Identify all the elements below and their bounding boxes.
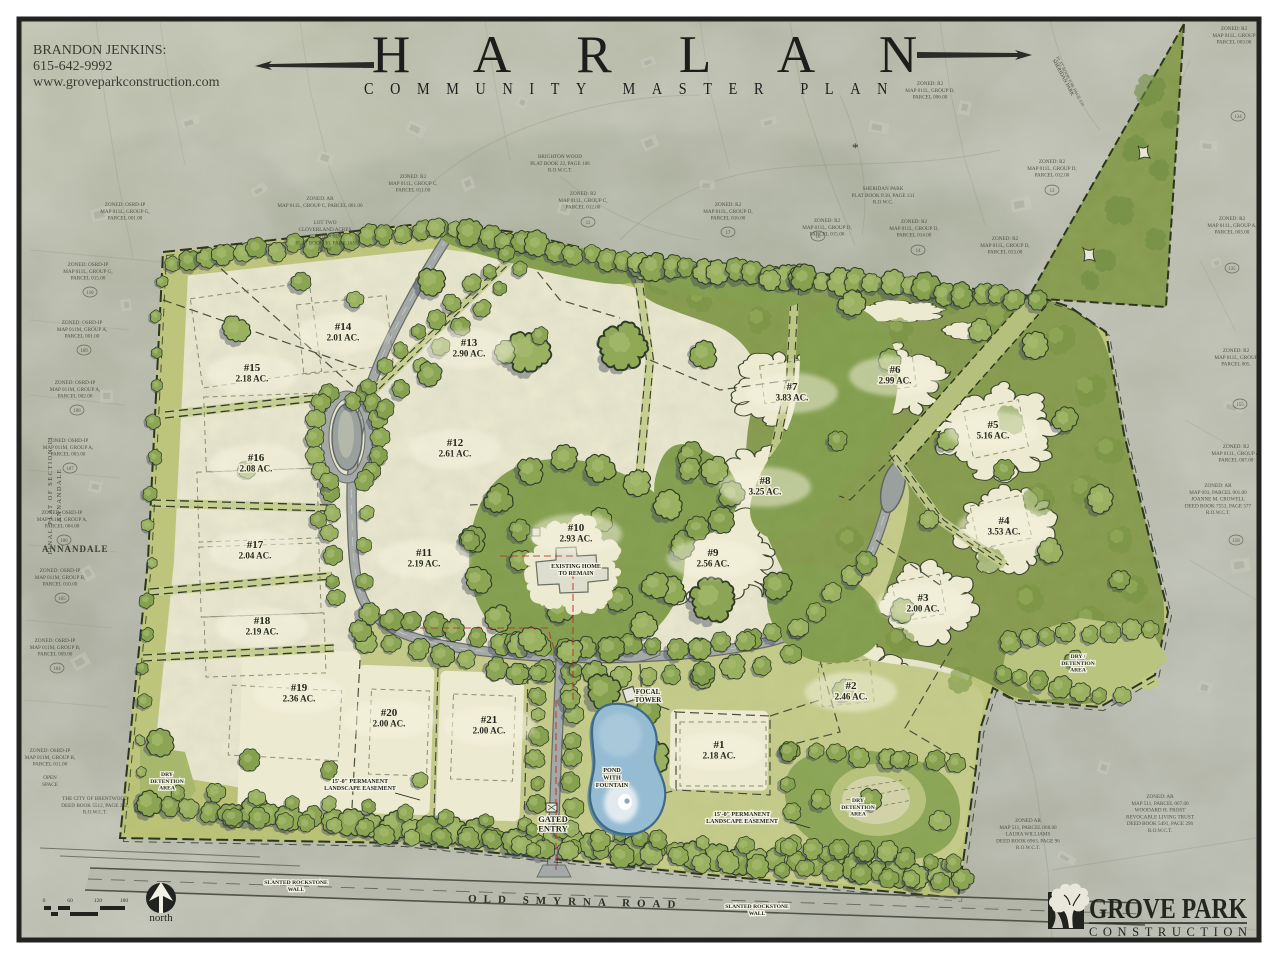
svg-text:DEED BOOK 7553, PAGE 577: DEED BOOK 7553, PAGE 577 [1185,503,1252,509]
svg-text:2.04 AC.: 2.04 AC. [239,550,272,560]
svg-text:108: 108 [73,409,81,414]
svg-text:#16: #16 [248,452,265,464]
svg-text:104: 104 [53,667,61,672]
svg-text:180: 180 [120,898,129,904]
svg-text:*: * [852,140,859,155]
svg-text:PARCEL 003.00: PARCEL 003.00 [1215,230,1250,236]
svg-text:THE CITY OF BRENTWOOD: THE CITY OF BRENTWOOD [62,796,128,802]
svg-text:PARCEL 016.00: PARCEL 016.00 [711,216,746,222]
svg-text:2.46 AC.: 2.46 AC. [835,691,868,701]
svg-text:MAP 011L, GROUP: MAP 011L, GROUP [1214,355,1257,361]
svg-text:L: L [679,26,711,84]
svg-text:AREA: AREA [1070,668,1086,674]
svg-text:MAP 011L, GROUP C, PARCEL 001.: MAP 011L, GROUP C, PARCEL 001.00 [277,203,363,209]
svg-text:#5: #5 [988,419,1000,431]
svg-text:2.19 AC.: 2.19 AC. [246,626,279,636]
svg-text:#19: #19 [291,682,308,694]
svg-text:#21: #21 [481,714,498,726]
svg-text:2.93 AC.: 2.93 AC. [560,533,593,543]
svg-text:DEED BOOK 6963, PAGE 96: DEED BOOK 6963, PAGE 96 [996,838,1060,844]
svg-text:134: 134 [1234,115,1242,120]
svg-text:R.O.W.C.T.: R.O.W.C.T. [1206,510,1230,516]
svg-text:#11: #11 [416,547,432,559]
svg-text:TO REMAIN: TO REMAIN [558,571,594,577]
svg-text:DRY: DRY [852,798,864,804]
svg-text:REVOCABLE LIVING TRUST: REVOCABLE LIVING TRUST [1126,814,1195,820]
svg-text:MAP 011M, GROUP A,: MAP 011M, GROUP A, [57,327,108,333]
svg-text:WALL: WALL [749,911,766,917]
svg-text:PARCEL 003.00: PARCEL 003.00 [51,452,86,458]
svg-text:MAP 011L, GROUP G,: MAP 011L, GROUP G, [100,209,149,215]
svg-text:ZONED: OSRD-IP: ZONED: OSRD-IP [62,320,103,326]
svg-text:MAP 011L, GROUP D,: MAP 011L, GROUP D, [703,209,752,215]
svg-text:MAP 511, PARCEL 067.00: MAP 511, PARCEL 067.00 [1131,801,1189,807]
svg-text:MAP 011L, GROUP D,: MAP 011L, GROUP D, [802,225,851,231]
svg-text:ZONED: R2: ZONED: R2 [1039,159,1066,165]
svg-text:WITH: WITH [603,774,621,781]
svg-text:11: 11 [586,221,591,226]
svg-text:PARCEL 011.00: PARCEL 011.00 [33,762,68,768]
svg-text:POND: POND [603,767,621,774]
svg-text:SECTION SIX: SECTION SIX [309,234,341,240]
svg-text:R.O.W.C.T.: R.O.W.C.T. [1016,845,1040,851]
svg-text:PARCEL 003.00: PARCEL 003.00 [1217,40,1252,46]
svg-text:2.90 AC.: 2.90 AC. [453,348,486,358]
svg-text:GROVE PARK: GROVE PARK [1089,894,1247,925]
svg-text:2.00 AC.: 2.00 AC. [907,603,940,613]
svg-text:DRY /: DRY / [1071,654,1086,660]
svg-text:A: A [777,26,815,84]
svg-text:#13: #13 [461,337,478,349]
svg-text:PARCEL 005.: PARCEL 005. [1221,362,1251,368]
svg-text:ZONED: R2: ZONED: R2 [400,174,427,180]
svg-text:R.O.W.C.T.: R.O.W.C.T. [83,810,107,816]
svg-text:MAP 011M, GROUP B,: MAP 011M, GROUP B, [30,645,81,651]
svg-text:PLAT BOOK P.38, PAGE 131: PLAT BOOK P.38, PAGE 131 [851,193,915,199]
svg-text:109: 109 [80,349,88,354]
svg-text:ZONED: R2: ZONED: R2 [814,218,841,224]
svg-text:BRIGHTON WOOD: BRIGHTON WOOD [538,154,582,160]
svg-text:DETENTION: DETENTION [1061,661,1095,667]
svg-text:PARCEL 006.00: PARCEL 006.00 [913,95,948,101]
svg-text:DRY: DRY [161,772,173,778]
svg-text:R.O.W.C.T.: R.O.W.C.T. [1148,828,1172,834]
svg-text:#15: #15 [244,362,261,374]
svg-text:15'-0" PERMANENT: 15'-0" PERMANENT [714,812,770,818]
svg-text:#4: #4 [999,515,1011,527]
svg-text:ZONED: AR: ZONED: AR [1204,483,1232,489]
svg-text:120: 120 [94,898,103,904]
svg-text:#6: #6 [890,364,902,376]
svg-text:ZONED: OSRD-IP: ZONED: OSRD-IP [35,638,76,644]
svg-text:SHERIDAN PARK: SHERIDAN PARK [863,186,904,192]
svg-text:135: 135 [1228,267,1236,272]
svg-text:PARCEL 013.00: PARCEL 013.00 [988,250,1023,256]
svg-text:AREA: AREA [159,786,175,792]
svg-text:WALL: WALL [288,887,305,893]
svg-text:ANNANDALE: ANNANDALE [42,544,109,554]
svg-text:COMMUNITY MASTER PLAN: COMMUNITY MASTER PLAN [364,79,904,98]
svg-text:MAP 011L, GROUP D,: MAP 011L, GROUP D, [980,243,1029,249]
svg-text:SLANTED ROCKSTONE: SLANTED ROCKSTONE [264,880,328,886]
svg-text:PARCEL 014.00: PARCEL 014.00 [897,233,932,239]
svg-text:MAP 011L, GROUP G,: MAP 011L, GROUP G, [63,269,112,275]
svg-text:PLAT BOOK 10, PAGE 163: PLAT BOOK 10, PAGE 163 [295,240,355,246]
svg-text:LANDSCAPE EASEMENT: LANDSCAPE EASEMENT [324,786,396,792]
svg-text:ZONED: R2: ZONED: R2 [1223,444,1250,450]
svg-text:17: 17 [726,231,731,236]
svg-text:#18: #18 [254,615,271,627]
svg-text:DEED BOOK 5491, PAGE 296: DEED BOOK 5491, PAGE 296 [1127,821,1194,827]
svg-text:DEED BOOK 5512, PAGE 302,: DEED BOOK 5512, PAGE 302, [61,803,129,809]
svg-text:2.08 AC.: 2.08 AC. [240,463,273,473]
svg-text:15'-0" PERMANENT: 15'-0" PERMANENT [332,779,388,785]
svg-text:5.16 AC.: 5.16 AC. [977,430,1010,440]
svg-text:ZONED: R2: ZONED: R2 [917,81,944,87]
svg-text:SLANTED ROCKSTONE: SLANTED ROCKSTONE [725,904,789,910]
svg-text:155: 155 [1236,403,1244,408]
svg-text:ANNANDALE: ANNANDALE [56,468,63,522]
svg-text:ZONED: OSRD-IP: ZONED: OSRD-IP [105,202,146,208]
svg-text:MAP 011M, GROUP B,: MAP 011M, GROUP B, [25,755,76,761]
svg-text:LOT TWO: LOT TWO [313,220,336,226]
svg-text:107: 107 [66,467,74,472]
svg-text:ZONED: OSRD-IP: ZONED: OSRD-IP [40,568,81,574]
svg-text:2.56 AC.: 2.56 AC. [697,558,730,568]
svg-text:PLAT BOOK 22, PAGE 108: PLAT BOOK 22, PAGE 108 [530,161,590,167]
svg-text:MAP 511, PARCEL 068.00: MAP 511, PARCEL 068.00 [999,825,1057,831]
svg-text:MAP 011M, GROUP B,: MAP 011M, GROUP B, [35,575,86,581]
svg-text:PARCEL 010.00: PARCEL 010.00 [43,582,78,588]
svg-text:#9: #9 [708,547,720,559]
svg-text:2.01 AC.: 2.01 AC. [327,332,360,342]
svg-text:ZONED: AR: ZONED: AR [306,196,334,202]
svg-text:13: 13 [1050,189,1055,194]
svg-text:CLOVERLAND ACRES: CLOVERLAND ACRES [299,227,352,233]
svg-text:FOCAL: FOCAL [636,688,661,696]
svg-text:ZONED: R2: ZONED: R2 [992,236,1019,242]
svg-text:A: A [473,26,511,84]
svg-text:DETENTION: DETENTION [841,805,875,811]
svg-text:ZONED: OSRD-IP: ZONED: OSRD-IP [55,380,96,386]
svg-text:2.18 AC.: 2.18 AC. [236,373,269,383]
svg-text:PARCEL 012.00: PARCEL 012.00 [1035,173,1070,179]
svg-text:MAP 093, PARCEL 001.00: MAP 093, PARCEL 001.00 [1189,490,1247,496]
svg-text:2.00 AC.: 2.00 AC. [373,718,406,728]
svg-text:FINAL PLAT OF SECTION 11: FINAL PLAT OF SECTION 11 [47,436,54,555]
svg-text:110: 110 [86,291,94,296]
svg-text:MAP 011L, GROUP A,: MAP 011L, GROUP A, [1207,223,1256,229]
svg-text:DETENTION: DETENTION [150,779,184,785]
svg-text:3.53 AC.: 3.53 AC. [988,526,1021,536]
svg-text:#3: #3 [918,592,930,604]
svg-text:BRANDON JENKINS:: BRANDON JENKINS: [33,43,166,58]
svg-text:2.18 AC.: 2.18 AC. [703,750,736,760]
svg-text:ZONED: R2: ZONED: R2 [1223,348,1250,354]
svg-text:JOANNE M. CROWELL: JOANNE M. CROWELL [1191,497,1245,503]
svg-text:OPEN: OPEN [43,775,57,781]
svg-text:www.groveparkconstruction.com: www.groveparkconstruction.com [33,75,220,90]
svg-text:FOUNTAIN: FOUNTAIN [596,782,629,789]
svg-text:MAP 011L, GROUP: MAP 011L, GROUP [1212,33,1255,39]
svg-text:#2: #2 [846,680,858,692]
svg-text:ZONED: AR: ZONED: AR [1146,794,1174,800]
svg-text:3.83 AC.: 3.83 AC. [776,392,809,402]
svg-text:N: N [879,26,917,84]
svg-text:R.O.W.C.T.: R.O.W.C.T. [548,168,572,174]
svg-text:#1: #1 [714,739,725,751]
svg-text:PARCEL 012.00: PARCEL 012.00 [566,205,601,211]
svg-text:PARCEL 009.00: PARCEL 009.00 [38,652,73,658]
svg-text:LAURA WILLIAMS: LAURA WILLIAMS [1006,832,1051,838]
svg-text:14: 14 [916,249,921,254]
svg-text:SPACE: SPACE [42,782,58,788]
svg-text:3.25 AC.: 3.25 AC. [749,486,782,496]
svg-text:#7: #7 [787,381,799,393]
svg-text:ZONED: R2: ZONED: R2 [901,219,928,225]
svg-text:2.36 AC.: 2.36 AC. [283,693,316,703]
svg-text:ZONED: OSRD-IP: ZONED: OSRD-IP [30,748,71,754]
svg-text:AREA: AREA [850,812,866,818]
svg-text:MAP 011L, GROUP D,: MAP 011L, GROUP D, [905,88,954,94]
svg-text:WOODARD H. FROST: WOODARD H. FROST [1135,808,1187,814]
svg-text:#10: #10 [568,522,585,534]
svg-text:ZONED: OSRD-IP: ZONED: OSRD-IP [68,262,109,268]
svg-text:#8: #8 [760,475,772,487]
svg-text:106: 106 [60,539,68,544]
svg-text:ZONED: R2: ZONED: R2 [1221,26,1248,32]
svg-text:P.O.W.: P.O.W. [318,247,332,253]
svg-text:PARCEL 007.00: PARCEL 007.00 [1219,458,1254,464]
svg-text:R: R [576,26,612,84]
svg-text:MAP 011L, GROUP D,: MAP 011L, GROUP D, [1027,166,1076,172]
svg-text:615-642-9992: 615-642-9992 [33,59,112,74]
svg-text:LANDSCAPE EASEMENT: LANDSCAPE EASEMENT [706,819,778,825]
svg-text:60: 60 [67,898,73,904]
svg-text:2.19 AC.: 2.19 AC. [408,558,441,568]
svg-text:ZONED: R2: ZONED: R2 [570,191,597,197]
svg-text:2.99 AC.: 2.99 AC. [879,375,912,385]
svg-text:#20: #20 [381,707,398,719]
svg-text:MAP 011L, GROUP D,: MAP 011L, GROUP D, [889,226,938,232]
svg-text:PARCEL 002.00: PARCEL 002.00 [58,394,93,400]
svg-text:16: 16 [816,235,821,240]
svg-text:H: H [372,26,410,84]
svg-text:ZONED: R2: ZONED: R2 [715,202,742,208]
svg-text:MAP 011L, GROUP A,: MAP 011L, GROUP A, [1211,451,1260,457]
svg-text:PARCEL 001.00: PARCEL 001.00 [65,334,100,340]
svg-text:EXISTING HOME: EXISTING HOME [551,564,601,570]
svg-text:ZONED: R2: ZONED: R2 [1219,216,1246,222]
svg-text:MAP 011L, GROUP C,: MAP 011L, GROUP C, [558,198,607,204]
svg-text:R.O.W.C.: R.O.W.C. [873,200,893,206]
svg-text:MAP 011L, GROUP C,: MAP 011L, GROUP C, [388,181,437,187]
svg-text:ZONED AR: ZONED AR [1015,818,1041,824]
svg-text:PARCEL 011.00: PARCEL 011.00 [396,188,431,194]
svg-text:158: 158 [1232,539,1240,544]
svg-text:0: 0 [43,898,46,904]
svg-text:TOWER: TOWER [635,696,663,704]
svg-text:2.61 AC.: 2.61 AC. [439,448,472,458]
svg-text:PARCEL 015.00: PARCEL 015.00 [71,276,106,282]
svg-text:105: 105 [58,597,66,602]
svg-text:ENTRY: ENTRY [538,824,567,834]
svg-text:#17: #17 [247,539,264,551]
svg-text:2.00 AC.: 2.00 AC. [473,725,506,735]
svg-text:MAP 011M, GROUP A,: MAP 011M, GROUP A, [50,387,101,393]
svg-text:#14: #14 [335,321,352,333]
svg-text:#12: #12 [447,437,464,449]
svg-text:GATED: GATED [538,814,568,824]
svg-text:PARCEL 001.00: PARCEL 001.00 [108,216,143,222]
svg-text:north: north [149,912,173,924]
